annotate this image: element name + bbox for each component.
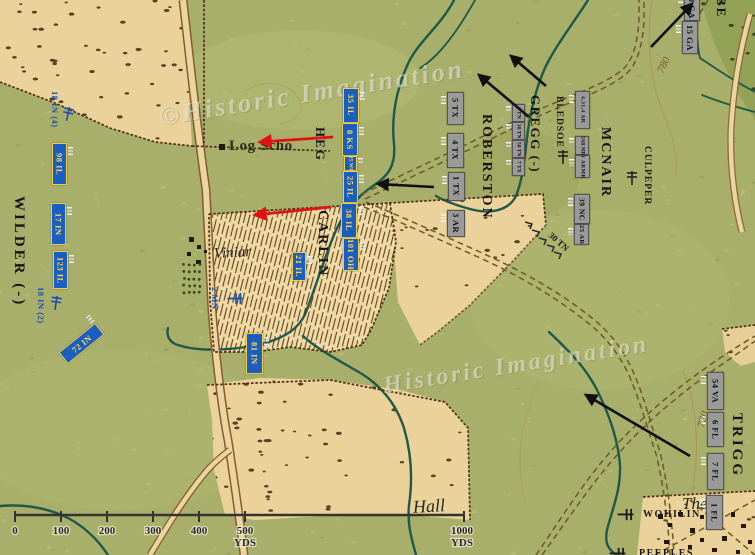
csa-unit-5tx: 5 TX (447, 92, 464, 125)
union-unit-101oh: 101 OH (343, 238, 359, 271)
csa-unit-1fl: 1 FL (706, 495, 723, 530)
commander-trigg: TRIGG (728, 413, 745, 478)
union-unit-21il: 21 IL (292, 252, 306, 281)
union-unit-18in4-label: 18 IN (4) (50, 91, 60, 128)
commander-heg: HEG (312, 127, 328, 162)
bottom-partial-label: PEEPLES (639, 548, 694, 555)
hall-label: Hall (412, 495, 445, 518)
hq-flag-icon (617, 508, 635, 523)
csa-unit-39nc: 39 NC (574, 194, 590, 224)
viniard-label: Viniar (214, 244, 252, 263)
union-unit-25il: 25 IL (343, 171, 358, 203)
union-unit-123il: 123 IL (53, 251, 68, 289)
union-unit-17in: 17 IN (51, 203, 66, 245)
csa-unit-4tx: 4 TX (447, 133, 464, 168)
csa-unit-6fl: 6 FL (707, 412, 724, 447)
union-unit-15wi: 15 WI (344, 156, 357, 171)
union-unit-8ks: 8 KS (342, 123, 358, 156)
commander-wilder: WILDER (-) (10, 196, 27, 307)
hq-flag-icon (609, 547, 627, 555)
csa-unit-1tn: 1 TN (512, 104, 525, 122)
commander-mcnair: MCNAIR (597, 127, 613, 198)
commander-bledsoe: BLEDSOE (554, 96, 564, 148)
csa-unit-25ar: 25 AR (574, 224, 589, 245)
hq-flag-icon (226, 292, 244, 306)
csa-unit-4-31-4ar: 4,31,4 AR (575, 91, 590, 129)
union-unit-81in: 81 IN (246, 333, 263, 374)
union-unit-35il: 35 IL (343, 88, 359, 123)
csa-unit-20ga: 20 GA (684, 0, 700, 21)
csa-unit-1armr: 1 ARMR (575, 155, 590, 178)
csa-unit-15ga: 15 GA (682, 21, 698, 54)
csa-unit-1tx: 1 TX (448, 172, 465, 201)
hq-flag-icon (49, 294, 64, 312)
csa-unit-10tn: 10 TN (512, 122, 525, 140)
hq-flag-icon (557, 148, 570, 166)
commander-gregg: GREGG (-) (527, 95, 543, 173)
log-school-label: Log Scho (229, 138, 293, 155)
commander-robertson: ROBERSTON (478, 114, 494, 220)
union-unit-18in2-label: 18 IN (2) (36, 287, 46, 324)
csa-unit-7tx: 7 TX (512, 158, 525, 176)
commander-carlin: CARLIN (314, 210, 330, 277)
commander-benning-partial: BE (713, 0, 729, 18)
union-unit-2mn-label: 2 MN (210, 287, 220, 310)
csa-unit-7fl: 7 FL (707, 453, 724, 490)
commander-culpeper: CULPEPER (642, 146, 652, 205)
union-unit-38il: 38 IL (341, 203, 357, 238)
csa-unit-50tn: 50 TN (512, 140, 525, 158)
union-unit-98il: 98 IL (52, 143, 67, 185)
wohilin-label: WOHILIN (643, 509, 701, 520)
hq-flag-icon (626, 169, 639, 187)
csa-unit-3ar: 3 AR (447, 210, 465, 237)
csa-unit-54va: 54 VA (707, 372, 724, 410)
battle-map: ©Historic Imagination Historic Imaginati… (0, 0, 755, 555)
csa-unit-2armr: 2AR MR (575, 136, 589, 155)
